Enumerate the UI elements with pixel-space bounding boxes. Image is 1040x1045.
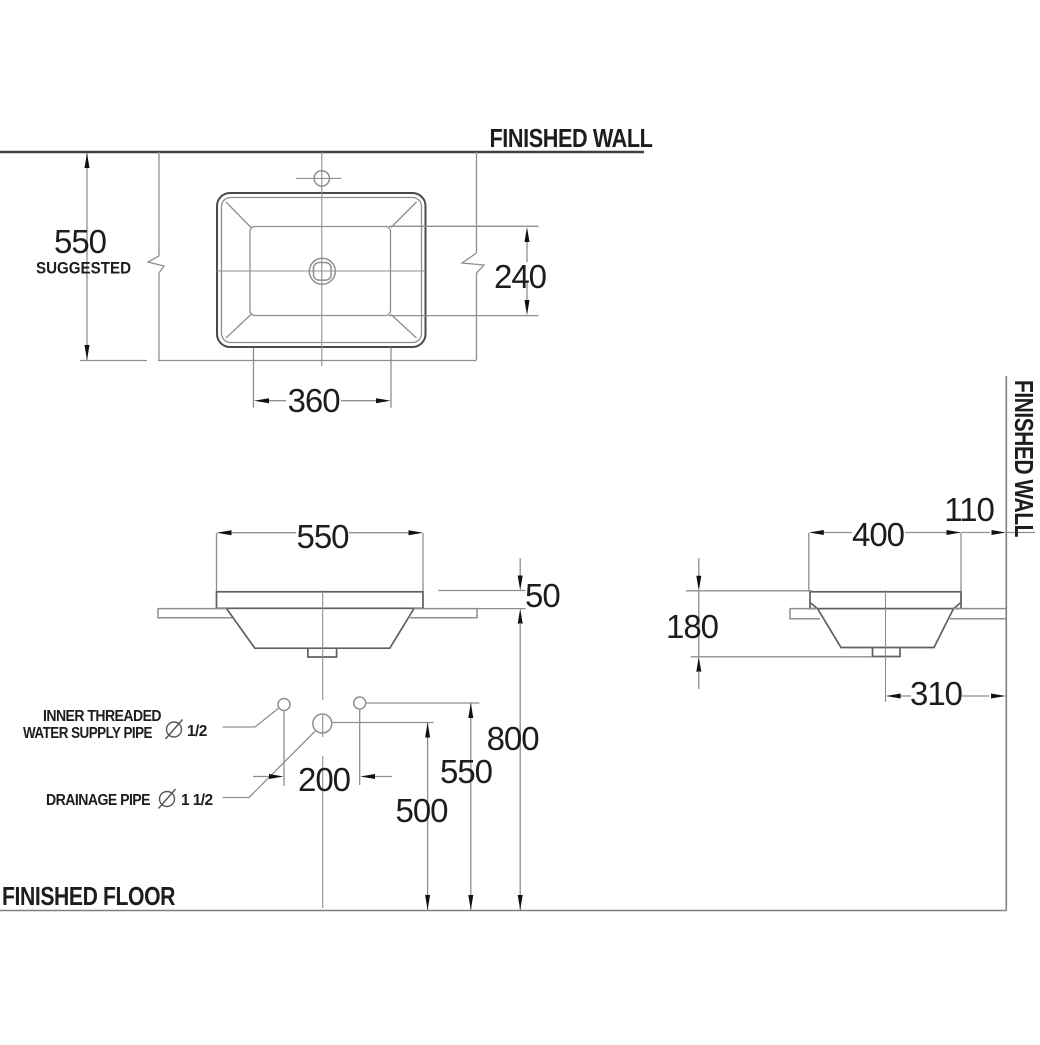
svg-text:200: 200 bbox=[298, 761, 351, 798]
svg-text:FINISHED FLOOR: FINISHED FLOOR bbox=[2, 881, 176, 911]
svg-text:DRAINAGE PIPE: DRAINAGE PIPE bbox=[46, 792, 150, 809]
svg-text:240: 240 bbox=[494, 258, 547, 295]
svg-text:1 1/2: 1 1/2 bbox=[181, 792, 212, 809]
svg-text:550: 550 bbox=[296, 518, 349, 555]
svg-text:800: 800 bbox=[487, 720, 540, 757]
svg-text:WATER SUPPLY PIPE: WATER SUPPLY PIPE bbox=[23, 725, 152, 742]
svg-text:360: 360 bbox=[288, 382, 341, 419]
svg-text:550: 550 bbox=[54, 223, 107, 260]
svg-text:INNER THREADED: INNER THREADED bbox=[43, 708, 161, 725]
svg-text:FINISHED WALL: FINISHED WALL bbox=[1009, 380, 1039, 537]
svg-text:310: 310 bbox=[910, 675, 963, 712]
svg-text:500: 500 bbox=[395, 792, 448, 829]
svg-text:110: 110 bbox=[944, 491, 994, 528]
svg-text:1/2: 1/2 bbox=[187, 723, 207, 740]
svg-text:50: 50 bbox=[525, 577, 560, 614]
svg-text:SUGGESTED: SUGGESTED bbox=[36, 259, 131, 278]
svg-text:550: 550 bbox=[440, 753, 493, 790]
svg-text:180: 180 bbox=[666, 608, 719, 645]
svg-text:FINISHED WALL: FINISHED WALL bbox=[490, 123, 654, 153]
svg-text:400: 400 bbox=[852, 516, 905, 553]
